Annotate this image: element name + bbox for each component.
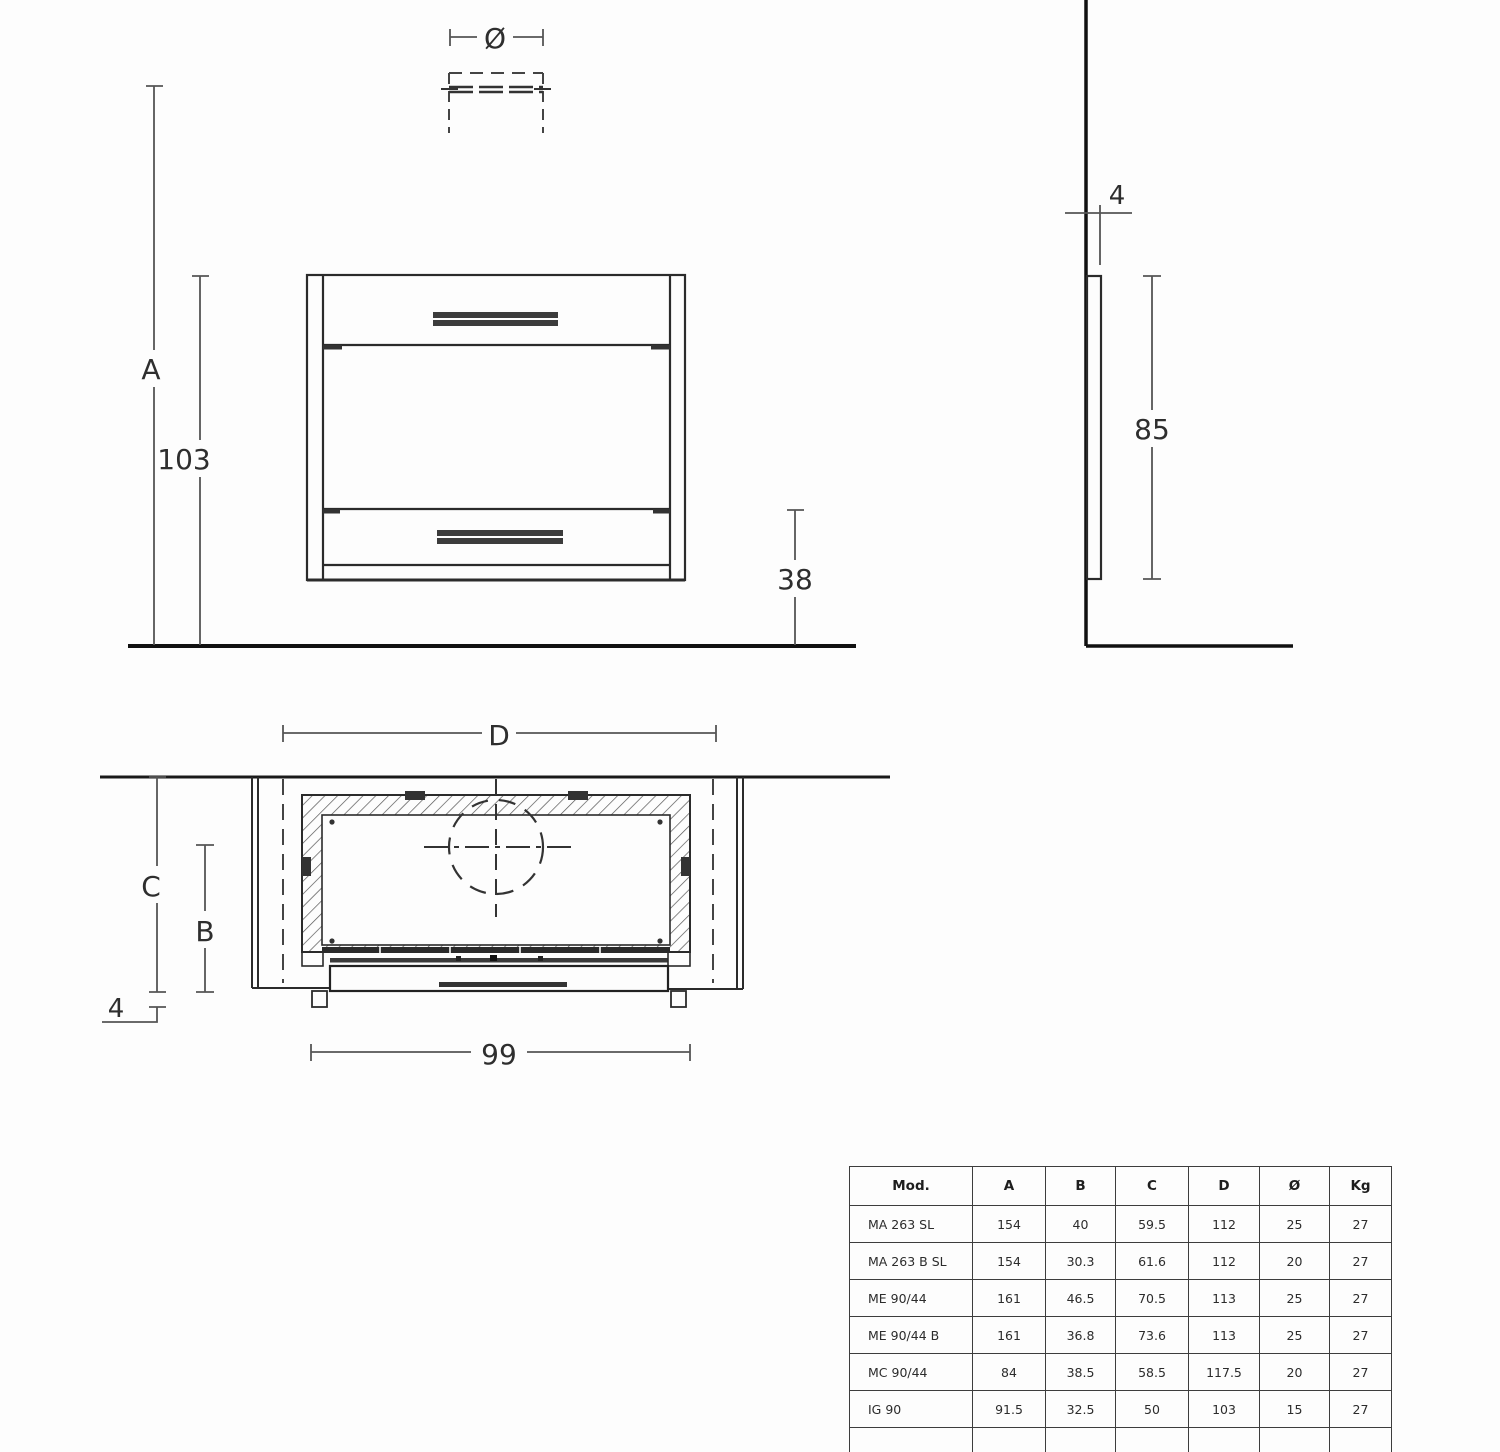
- model-name: MA 263 SL: [850, 1206, 973, 1243]
- hood-side-profile: [1087, 276, 1101, 579]
- table-row: ME 90/44 B 161 36.8 73.6 113 25 27: [850, 1317, 1392, 1354]
- front-panel: [330, 966, 668, 991]
- model-name: IG 90: [850, 1391, 973, 1428]
- divider-corner-marks: [323, 345, 670, 514]
- model-name: MA 263 B SL: [850, 1243, 973, 1280]
- header-b: B: [1046, 1167, 1116, 1206]
- dimension-C: C: [135, 777, 167, 992]
- bottom-assembly: [302, 947, 690, 1007]
- header-kg: Kg: [1330, 1167, 1392, 1206]
- dimension-4-side: [1065, 205, 1132, 265]
- header-c: C: [1116, 1167, 1189, 1206]
- label-4-plan: 4: [108, 994, 125, 1024]
- upper-vent-grille: [433, 312, 558, 326]
- label-A: A: [141, 353, 160, 386]
- model-name: MC 90/44: [850, 1354, 973, 1391]
- spec-table: Mod. A B C D Ø Kg MA 263 SL 154 40 59.5 …: [849, 1166, 1391, 1452]
- dimension-A: A: [136, 86, 166, 645]
- label-103: 103: [157, 443, 210, 476]
- table-row: IG 90 91.5 32.5 50 103 15 27: [850, 1391, 1392, 1428]
- spec-table-header-row: Mod. A B C D Ø Kg: [850, 1167, 1392, 1206]
- technical-drawing-page: { "front_view": { "labels": { "diameter"…: [0, 0, 1500, 1427]
- label-38: 38: [777, 563, 813, 596]
- dimension-D: D: [283, 716, 716, 752]
- corner-tab-right: [671, 991, 686, 1007]
- dimension-85: 85: [1127, 276, 1177, 579]
- dimension-103: 103: [156, 276, 212, 645]
- label-4-side: 4: [1109, 181, 1126, 211]
- dimension-38: 38: [772, 510, 818, 645]
- table-row: MC 90/44 84 38.5 58.5 117.5 20 27: [850, 1354, 1392, 1391]
- table-row: MA 263 B SL 154 30.3 61.6 112 20 27: [850, 1243, 1392, 1280]
- label-C: C: [141, 870, 161, 903]
- table-row: ME 90/44 161 46.5 70.5 113 25 27: [850, 1280, 1392, 1317]
- exhaust-duct-dashed: [441, 73, 551, 133]
- dimension-B: B: [189, 845, 220, 992]
- plan-view: D: [100, 716, 890, 1071]
- model-name: ME 90/44: [850, 1280, 973, 1317]
- label-99: 99: [481, 1038, 517, 1071]
- dimension-99: 99: [311, 1035, 690, 1071]
- table-row: MA 263 SL 154 40 59.5 112 25 27: [850, 1206, 1392, 1243]
- lower-vent-grille: [437, 530, 563, 544]
- header-mod: Mod.: [850, 1167, 973, 1206]
- corner-tab-left: [312, 991, 327, 1007]
- table-row-partial: [850, 1428, 1392, 1452]
- header-a: A: [973, 1167, 1046, 1206]
- model-name: ME 90/44 B: [850, 1317, 973, 1354]
- label-B: B: [195, 915, 214, 948]
- front-panel-handle: [439, 982, 567, 987]
- side-view: 4 85: [1065, 0, 1293, 646]
- label-85: 85: [1134, 413, 1170, 446]
- label-diameter: Ø: [484, 22, 506, 55]
- header-d: D: [1189, 1167, 1260, 1206]
- front-view: A 103 38 Ø: [128, 20, 856, 646]
- header-diameter: Ø: [1260, 1167, 1330, 1206]
- label-D: D: [488, 719, 510, 752]
